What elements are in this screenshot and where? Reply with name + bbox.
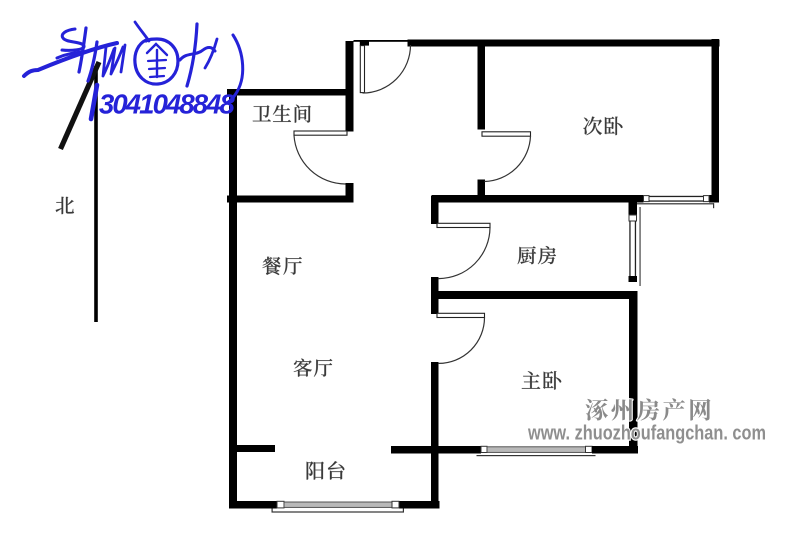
svg-text:3041048848: 3041048848 — [99, 89, 236, 120]
svg-text:www. zhuozhoufangchan. com: www. zhuozhoufangchan. com — [527, 423, 766, 445]
